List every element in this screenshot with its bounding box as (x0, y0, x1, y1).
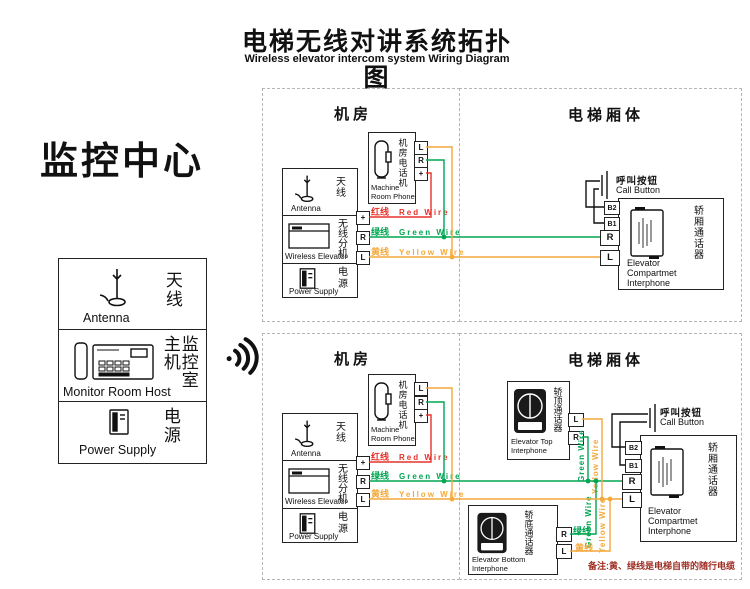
yellow-wire-vertical-label: Yellow Wire (598, 498, 607, 553)
green-wire-en: Green Wire (399, 228, 462, 237)
wiring-diagram-page: 电梯无线对讲系统拓扑图 Wireless elevator intercom s… (0, 0, 750, 589)
red-wire-en: Red Wire (399, 208, 450, 217)
bottom-machine-room-title: 机房 (334, 348, 372, 369)
phone-label-en1: Machine (371, 183, 399, 192)
divider (283, 460, 357, 461)
monitor-power-label-en: Power Supply (79, 443, 156, 457)
power-label-en: Power Supply (289, 532, 338, 541)
terminal-l: L (414, 141, 428, 155)
top-machine-room-phone: 机房电话机 Machine Room Phone (368, 132, 416, 204)
compartment-label-en2: Compartmet (627, 268, 677, 278)
compartment-label-zh: 轿厢通话器 (705, 442, 716, 504)
monitor-center-title: 监控中心 (40, 130, 204, 185)
yellow-wire-short-label: 黄线 (575, 541, 593, 554)
terminal-l: L (568, 413, 584, 427)
green-wire-short-label: 绿线 (573, 524, 591, 537)
power-label-en: Power Supply (289, 287, 338, 296)
phone-label-en2: Room Phone (371, 434, 415, 443)
phone-label-en2: Room Phone (371, 192, 415, 201)
terminal-r: R (622, 474, 642, 490)
antenna-label-zh: 天线 (333, 176, 344, 210)
handset-icon (373, 382, 393, 424)
bottom-machine-room-phone: 机房电话机 Machine Room Phone (368, 374, 416, 446)
interphone-panel-icon (629, 206, 665, 260)
terminal-l: L (356, 251, 370, 265)
wireless-unit-icon (288, 468, 330, 494)
green-wire-label: 绿线 Green Wire (371, 469, 462, 482)
terminal-r: R (356, 475, 370, 489)
monitor-antenna-label-zh: 天线 (163, 271, 181, 317)
antenna-label-en: Antenna (291, 449, 321, 458)
red-wire-label: 红线 Red Wire (371, 450, 450, 463)
red-wire-en: Red Wire (399, 453, 450, 462)
speaker-icon (475, 512, 509, 554)
bottom-interphone-label-zh: 轿底通话器 (523, 510, 532, 560)
divider (59, 329, 206, 330)
wireless-unit-label-en: Wireless Elevator (285, 252, 347, 261)
elevator-bottom-interphone: 轿底通话器 Elevator Bottom Interphone (468, 505, 558, 575)
red-wire-label: 红线 Red Wire (371, 205, 450, 218)
green-wire-en: Green Wire (399, 472, 462, 481)
handset-icon (373, 140, 393, 182)
power-supply-icon (299, 268, 316, 289)
yellow-wire-en: Yellow Wire (399, 248, 465, 257)
yellow-wire-en: Yellow Wire (399, 490, 465, 499)
top-interphone-label-en2: Interphone (511, 446, 547, 455)
elevator-top-interphone: 轿顶通话器 Elevator Top Interphone (507, 381, 570, 460)
bottom-elevator-car-title: 电梯厢体 (568, 349, 644, 370)
red-wire-zh: 红线 (371, 450, 389, 463)
top-equipment-box: 天线 Antenna 无线分机 Wireless Elevator 电源 Pow… (282, 168, 358, 298)
terminal-r: R (600, 230, 620, 246)
antenna-label-zh: 天线 (333, 421, 344, 455)
wireless-unit-icon (288, 223, 330, 249)
terminal-b1: B1 (625, 459, 642, 473)
power-supply-icon (109, 409, 129, 435)
terminal-r: R (356, 231, 370, 245)
terminal-b1: B1 (604, 217, 620, 231)
monitor-power-label-zh: 电源 (161, 407, 179, 447)
yellow-wire-label: 黄线 Yellow Wire (371, 245, 465, 258)
terminal-plus: + (356, 211, 370, 225)
terminal-b2: B2 (604, 201, 620, 215)
interphone-panel-icon (649, 444, 685, 500)
antenna-label-en: Antenna (291, 204, 321, 213)
divider (283, 263, 357, 264)
yellow-wire-zh: 黄线 (371, 245, 389, 258)
page-subtitle: Wireless elevator intercom system Wiring… (227, 53, 527, 65)
speaker-icon (513, 388, 547, 434)
top-elevator-car-title: 电梯厢体 (568, 104, 644, 125)
compartment-label-en1: Elevator (627, 258, 660, 268)
bottom-equipment-box: 天线 Antenna 无线分机 Wireless Elevator 电源 Pow… (282, 413, 358, 543)
bottom-interphone-label-en1: Elevator Bottom (472, 555, 525, 564)
wireless-signal-icon (219, 334, 262, 381)
compartment-label-en1: Elevator (648, 506, 681, 516)
terminal-l: L (600, 250, 620, 266)
bottom-compartment-interphone: 轿厢通话器 Elevator Compartmet Interphone (640, 435, 737, 542)
top-interphone-label-zh: 轿顶通话器 (552, 387, 561, 439)
yellow-wire-zh: 黄线 (371, 487, 389, 500)
divider (283, 508, 357, 509)
monitor-center-box: 天线 Antenna 监控室 主机 Monitor Room Host (58, 258, 207, 464)
top-machine-room-title: 机房 (334, 103, 372, 124)
terminal-r: R (414, 154, 428, 168)
phone-label-en1: Machine (371, 425, 399, 434)
terminal-r: R (414, 396, 428, 410)
green-wire-label: 绿线 Green Wire (371, 225, 462, 238)
antenna-icon (97, 267, 131, 309)
compartment-label-en2: Compartmet (648, 516, 698, 526)
green-wire-vertical-label: Green Wire (577, 429, 586, 482)
red-wire-zh: 红线 (371, 205, 389, 218)
terminal-plus: + (414, 409, 428, 423)
terminal-l: L (622, 492, 642, 508)
compartment-label-zh: 轿厢通话器 (691, 205, 702, 267)
compartment-label-en3: Interphone (648, 526, 691, 536)
divider (59, 401, 206, 402)
terminal-l: L (556, 544, 572, 559)
bottom-interphone-label-en2: Interphone (472, 564, 508, 573)
top-compartment-interphone: 轿厢通话器 Elevator Compartmet Interphone (618, 198, 724, 290)
terminal-b2: B2 (625, 441, 642, 455)
green-wire-zh: 绿线 (371, 225, 389, 238)
wireless-unit-label-en: Wireless Elevator (285, 497, 347, 506)
terminal-l: L (356, 493, 370, 507)
terminal-plus: + (356, 456, 370, 470)
terminal-plus: + (414, 167, 428, 181)
compartment-label-en3: Interphone (627, 278, 670, 288)
monitor-antenna-label-en: Antenna (83, 311, 130, 325)
terminal-r: R (556, 527, 572, 542)
antenna-icon (293, 174, 317, 204)
antenna-icon (293, 419, 317, 449)
divider (283, 215, 357, 216)
monitor-host-label-en: Monitor Room Host (63, 385, 171, 399)
bottom-call-button-label-en: Call Button (660, 417, 704, 427)
terminal-l: L (414, 382, 428, 396)
green-wire-zh: 绿线 (371, 469, 389, 482)
top-call-button-label-en: Call Button (616, 185, 660, 195)
top-interphone-label-en1: Elevator Top (511, 437, 553, 446)
power-supply-icon (299, 513, 316, 534)
monitor-host-phone-icon (73, 337, 157, 383)
footnote: 备注:黄、绿线是电梯自带的随行电缆 (588, 559, 735, 572)
yellow-wire-label: 黄线 Yellow Wire (371, 487, 465, 500)
yellow-wire-vertical-label: Yellow Wire (591, 439, 600, 494)
